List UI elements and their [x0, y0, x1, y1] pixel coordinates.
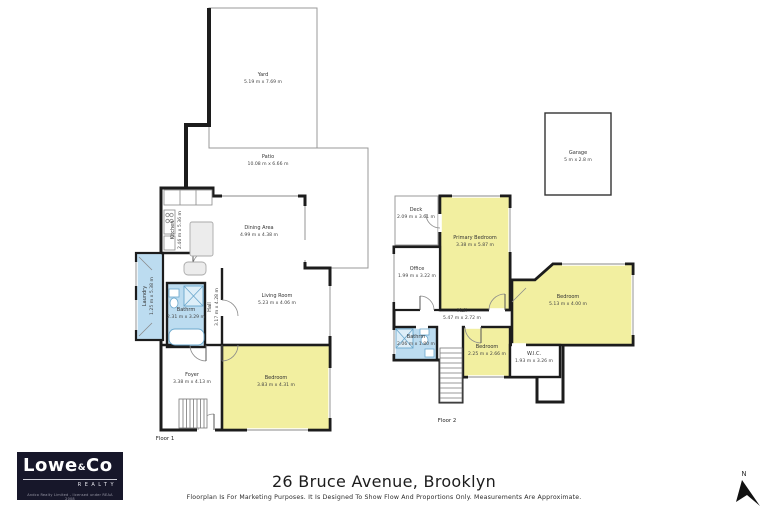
floor2-caption: Floor 2: [438, 418, 457, 424]
living-label: Living Room: [262, 293, 293, 299]
svg-text:2.46 m x 5.36 m: 2.46 m x 5.36 m: [177, 210, 183, 248]
kitchen-label: Kitchen: [170, 221, 176, 240]
bedroom-right-label: Bedroom: [557, 294, 580, 300]
svg-text:2.31 m x 3.29 m: 2.31 m x 3.29 m: [167, 314, 205, 320]
svg-text:5.47 m x 2.72 m: 5.47 m x 2.72 m: [443, 315, 481, 321]
primary-bedroom-label: Primary Bedroom: [453, 235, 497, 241]
svg-text:1.25 m x 5.38 m: 1.25 m x 5.38 m: [149, 276, 155, 314]
floor1-caption: Floor 1: [156, 436, 175, 442]
svg-text:5.23 m x 4.06 m: 5.23 m x 4.06 m: [258, 300, 296, 306]
bedroom-f1-label: Bedroom: [265, 375, 288, 381]
room-primary-bedroom: [440, 196, 510, 310]
svg-text:5.19 m x 7.69 m: 5.19 m x 7.69 m: [244, 79, 282, 85]
garage: Garage 5 m x 2.8 m: [545, 113, 611, 195]
foyer-label: Foyer: [185, 372, 200, 378]
floor1-plan: Yard 5.19 m x 7.69 m Patio 10.08 m x 6.6…: [136, 8, 368, 442]
svg-text:3.38 m x 4.13 m: 3.38 m x 4.13 m: [173, 379, 211, 385]
svg-text:1.93 m x 3.26 m: 1.93 m x 3.26 m: [515, 358, 553, 364]
svg-text:5 m x 2.8 m: 5 m x 2.8 m: [564, 157, 592, 163]
svg-text:10.08 m x 6.66 m: 10.08 m x 6.66 m: [248, 161, 289, 167]
floor2-stairs: [440, 348, 462, 402]
bedroom-small-label: Bedroom: [476, 344, 499, 350]
laundry-label: Laundry: [142, 286, 148, 306]
floorplan-canvas: Yard 5.19 m x 7.69 m Patio 10.08 m x 6.6…: [0, 0, 768, 512]
yard-label: Yard: [257, 72, 269, 78]
svg-text:5.13 m x 4.00 m: 5.13 m x 4.00 m: [549, 301, 587, 307]
svg-text:3.83 m x 4.31 m: 3.83 m x 4.31 m: [257, 382, 295, 388]
room-yard: [209, 8, 317, 148]
svg-text:2.06 m x 1.80 m: 2.06 m x 1.80 m: [397, 341, 435, 347]
svg-text:2.25 m x 2.66 m: 2.25 m x 2.66 m: [468, 351, 506, 357]
property-address-title: 26 Bruce Avenue, Brooklyn: [0, 472, 768, 491]
wic-label: W.I.C.: [527, 351, 542, 357]
office-label: Office: [410, 266, 425, 272]
garage-label: Garage: [569, 150, 587, 156]
disclaimer-text: Floorplan Is For Marketing Purposes. It …: [0, 494, 768, 501]
bathroom-f1-label: Bathrm: [177, 307, 196, 313]
yard-boundary-wall: [186, 8, 209, 188]
floor1-stairs: [179, 399, 207, 428]
hall-f2-label: Hall: [457, 308, 467, 314]
svg-text:2.09 m x 3.61 m: 2.09 m x 3.61 m: [397, 214, 435, 220]
svg-text:4.99 m x 4.38 m: 4.99 m x 4.38 m: [240, 232, 278, 238]
floorplan-page: Yard 5.19 m x 7.69 m Patio 10.08 m x 6.6…: [0, 0, 768, 512]
patio-label: Patio: [262, 154, 274, 160]
deck-label: Deck: [410, 207, 423, 213]
svg-text:3.17 m x 4.28 m: 3.17 m x 4.28 m: [214, 287, 220, 325]
hall-f1-label: Hall: [207, 302, 213, 312]
bathroom-f2-label: Bathrm: [407, 334, 426, 340]
svg-text:3.38 m x 5.87 m: 3.38 m x 5.87 m: [456, 242, 494, 248]
floor2-plan: Deck 2.09 m x 3.61 m Primary Bedroom 3.3…: [305, 196, 633, 424]
patio-boundary: [317, 148, 368, 268]
svg-text:1.99 m x 3.22 m: 1.99 m x 3.22 m: [398, 273, 436, 279]
room-deck: [395, 196, 438, 245]
dining-label: Dining Area: [244, 225, 273, 231]
